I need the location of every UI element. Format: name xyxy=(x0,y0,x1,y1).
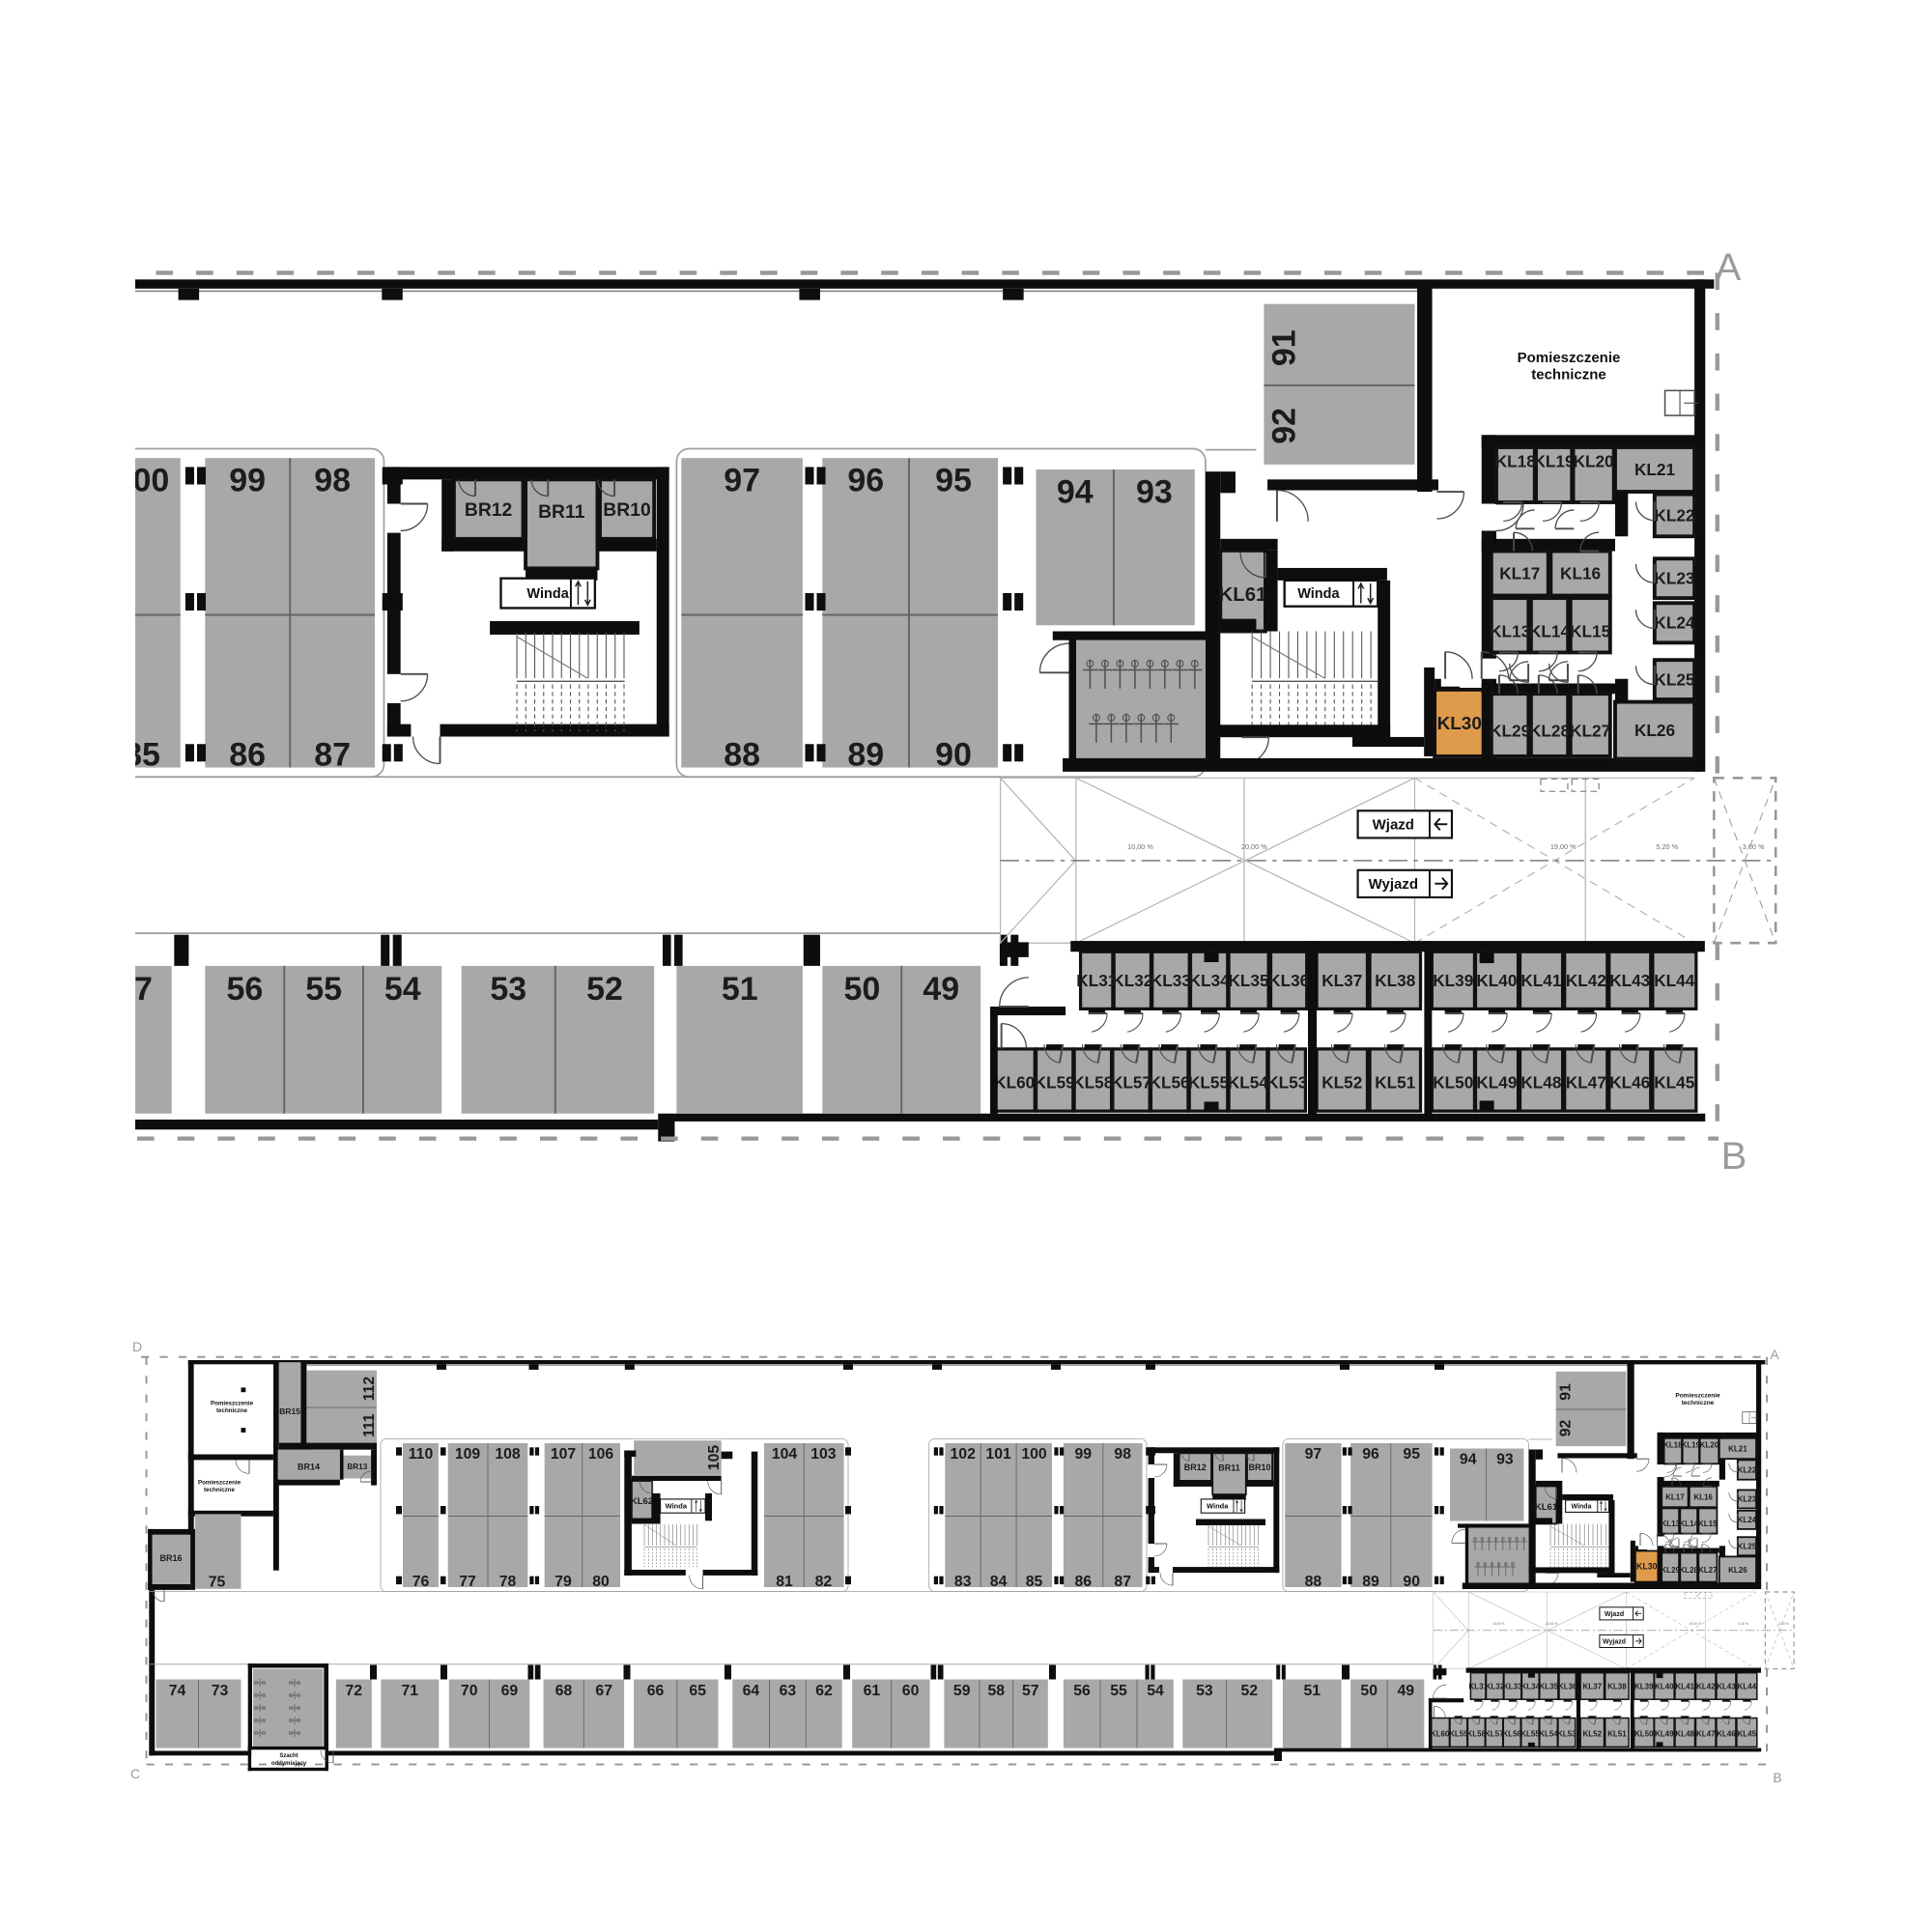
svg-text:55: 55 xyxy=(1110,1683,1127,1699)
svg-text:KL43: KL43 xyxy=(1609,971,1650,990)
svg-text:B: B xyxy=(1721,1135,1747,1178)
svg-text:KL32: KL32 xyxy=(1112,971,1152,990)
svg-text:51: 51 xyxy=(1304,1683,1321,1699)
svg-text:KL54: KL54 xyxy=(1228,1072,1268,1092)
svg-text:103: 103 xyxy=(810,1446,837,1463)
svg-text:KL26: KL26 xyxy=(1634,721,1675,740)
svg-text:KL42: KL42 xyxy=(1696,1682,1716,1690)
svg-text:KL61: KL61 xyxy=(1535,1502,1558,1513)
svg-text:Winda: Winda xyxy=(1297,586,1340,602)
svg-text:KL33: KL33 xyxy=(1151,971,1191,990)
svg-text:BR10: BR10 xyxy=(1248,1463,1270,1472)
svg-text:Winda: Winda xyxy=(1207,1502,1229,1511)
svg-text:Pomieszczenie: Pomieszczenie xyxy=(198,1480,241,1487)
svg-text:63: 63 xyxy=(780,1683,797,1699)
svg-text:KL50: KL50 xyxy=(1433,1072,1473,1092)
svg-text:KL55: KL55 xyxy=(1188,1072,1229,1092)
svg-text:100: 100 xyxy=(1021,1446,1047,1463)
svg-text:52: 52 xyxy=(1241,1683,1259,1699)
svg-text:65: 65 xyxy=(689,1683,706,1699)
svg-text:KL20: KL20 xyxy=(1574,452,1614,471)
svg-text:KL45: KL45 xyxy=(1654,1072,1694,1092)
svg-text:KL60: KL60 xyxy=(1431,1729,1450,1738)
svg-text:71: 71 xyxy=(402,1683,419,1699)
svg-text:94: 94 xyxy=(1057,473,1094,510)
svg-text:90: 90 xyxy=(935,736,972,773)
svg-text:KL44: KL44 xyxy=(1654,971,1694,990)
svg-text:BR11: BR11 xyxy=(538,501,585,523)
svg-text:KL48: KL48 xyxy=(1520,1072,1561,1092)
svg-text:KL57: KL57 xyxy=(1111,1072,1151,1092)
svg-text:KL27: KL27 xyxy=(1570,722,1610,741)
svg-text:KL13: KL13 xyxy=(1490,622,1530,641)
svg-text:KL59: KL59 xyxy=(1035,1072,1075,1092)
svg-text:KL52: KL52 xyxy=(1321,1072,1362,1092)
svg-text:KL16: KL16 xyxy=(1560,564,1601,583)
svg-text:KL55: KL55 xyxy=(1520,1729,1540,1738)
svg-text:99: 99 xyxy=(229,463,266,499)
svg-text:KL18: KL18 xyxy=(1495,452,1536,471)
svg-text:KL46: KL46 xyxy=(1609,1072,1650,1092)
svg-text:66: 66 xyxy=(647,1683,665,1699)
svg-text:KL21: KL21 xyxy=(1634,460,1675,479)
svg-text:KL26: KL26 xyxy=(1728,1566,1747,1575)
svg-text:Wjazd: Wjazd xyxy=(1605,1611,1624,1618)
svg-text:C: C xyxy=(130,1766,140,1781)
svg-text:KL39: KL39 xyxy=(1634,1682,1654,1690)
svg-text:BR15: BR15 xyxy=(279,1406,300,1416)
svg-text:74: 74 xyxy=(169,1683,186,1699)
svg-text:52: 52 xyxy=(586,971,623,1008)
svg-text:KL35: KL35 xyxy=(1540,1682,1559,1690)
svg-text:KL28: KL28 xyxy=(1529,722,1570,741)
svg-text:55: 55 xyxy=(305,971,342,1008)
svg-text:KL41: KL41 xyxy=(1520,971,1561,990)
svg-text:93: 93 xyxy=(1496,1452,1514,1468)
svg-text:KL33: KL33 xyxy=(1503,1682,1522,1690)
svg-text:81: 81 xyxy=(776,1574,793,1590)
svg-text:57: 57 xyxy=(1022,1683,1039,1699)
svg-text:KL50: KL50 xyxy=(1634,1729,1654,1738)
svg-text:79: 79 xyxy=(554,1574,572,1590)
svg-text:KL14: KL14 xyxy=(1679,1520,1698,1528)
svg-text:KL36: KL36 xyxy=(1268,971,1309,990)
svg-text:96: 96 xyxy=(1362,1446,1379,1463)
svg-text:102: 102 xyxy=(951,1446,977,1463)
svg-text:58: 58 xyxy=(988,1683,1006,1699)
svg-text:KL36: KL36 xyxy=(1558,1682,1577,1690)
svg-text:49: 49 xyxy=(923,971,959,1008)
svg-text:49: 49 xyxy=(1398,1683,1415,1699)
svg-text:20,00 %: 20,00 % xyxy=(1241,842,1267,851)
svg-text:KL62: KL62 xyxy=(631,1496,653,1507)
svg-text:KL53: KL53 xyxy=(1266,1072,1307,1092)
svg-text:KL23: KL23 xyxy=(1654,569,1694,588)
svg-text:91: 91 xyxy=(1265,329,1302,366)
svg-text:KL45: KL45 xyxy=(1738,1729,1757,1738)
svg-text:Winda: Winda xyxy=(526,586,569,602)
svg-text:KL21: KL21 xyxy=(1728,1444,1747,1453)
svg-text:70: 70 xyxy=(461,1683,478,1699)
svg-text:KL15: KL15 xyxy=(1698,1520,1718,1528)
svg-text:67: 67 xyxy=(595,1683,612,1699)
svg-text:KL40: KL40 xyxy=(1476,971,1517,990)
svg-text:KL24: KL24 xyxy=(1654,613,1694,633)
svg-text:Szacht: Szacht xyxy=(279,1753,298,1759)
svg-text:69: 69 xyxy=(501,1683,519,1699)
svg-text:50: 50 xyxy=(843,971,880,1008)
svg-text:BR12: BR12 xyxy=(1184,1463,1207,1472)
svg-text:KL35: KL35 xyxy=(1228,971,1268,990)
svg-text:KL27: KL27 xyxy=(1698,1566,1718,1575)
svg-text:111: 111 xyxy=(361,1413,378,1437)
svg-text:Pomieszczenie: Pomieszczenie xyxy=(211,1401,254,1407)
svg-text:Pomieszczenie: Pomieszczenie xyxy=(1675,1392,1720,1399)
svg-text:KL59: KL59 xyxy=(1449,1729,1468,1738)
svg-text:KL22: KL22 xyxy=(1654,506,1694,526)
svg-text:KL61: KL61 xyxy=(1219,584,1267,606)
svg-text:73: 73 xyxy=(212,1683,229,1699)
svg-text:KL56: KL56 xyxy=(1502,1729,1521,1738)
svg-text:BR12: BR12 xyxy=(465,499,512,521)
svg-text:KL51: KL51 xyxy=(1607,1729,1627,1738)
svg-text:62: 62 xyxy=(815,1683,833,1699)
svg-text:KL49: KL49 xyxy=(1476,1072,1517,1092)
svg-text:A: A xyxy=(1716,246,1742,289)
svg-text:64: 64 xyxy=(743,1683,760,1699)
svg-text:techniczne: techniczne xyxy=(1531,366,1606,383)
svg-text:KL54: KL54 xyxy=(1539,1729,1558,1738)
svg-text:68: 68 xyxy=(555,1683,573,1699)
svg-text:Wyjazd: Wyjazd xyxy=(1369,876,1418,893)
svg-text:85: 85 xyxy=(1026,1574,1043,1590)
svg-text:95: 95 xyxy=(1403,1446,1420,1463)
svg-text:98: 98 xyxy=(314,463,351,499)
svg-text:KL34: KL34 xyxy=(1521,1682,1541,1690)
svg-text:89: 89 xyxy=(1362,1574,1379,1590)
svg-text:KL25: KL25 xyxy=(1738,1543,1757,1551)
svg-text:54: 54 xyxy=(384,971,421,1008)
svg-text:KL18: KL18 xyxy=(1663,1440,1683,1449)
svg-text:KL42: KL42 xyxy=(1566,971,1606,990)
svg-text:78: 78 xyxy=(499,1574,517,1590)
svg-text:KL58: KL58 xyxy=(1467,1729,1487,1738)
svg-text:KL28: KL28 xyxy=(1679,1566,1698,1575)
svg-text:A: A xyxy=(1770,1347,1779,1362)
svg-text:KL22: KL22 xyxy=(1738,1465,1757,1474)
svg-text:112: 112 xyxy=(361,1377,378,1402)
svg-text:techniczne: techniczne xyxy=(216,1407,248,1414)
svg-text:KL41: KL41 xyxy=(1675,1682,1694,1690)
svg-text:KL13: KL13 xyxy=(1661,1520,1680,1528)
svg-text:86: 86 xyxy=(1075,1574,1093,1590)
svg-text:BR11: BR11 xyxy=(1218,1463,1240,1473)
svg-text:KL25: KL25 xyxy=(1654,670,1694,690)
svg-text:86: 86 xyxy=(229,736,266,773)
svg-text:KL38: KL38 xyxy=(1607,1682,1627,1690)
svg-text:oddymiający: oddymiający xyxy=(271,1761,307,1767)
svg-text:20,00 %: 20,00 % xyxy=(1546,1622,1557,1626)
svg-text:10,00 %: 10,00 % xyxy=(1127,842,1153,851)
svg-text:93: 93 xyxy=(1136,473,1173,510)
svg-text:KL44: KL44 xyxy=(1738,1682,1757,1690)
svg-text:BR13: BR13 xyxy=(347,1463,367,1471)
svg-text:98: 98 xyxy=(1114,1446,1131,1463)
svg-text:KL37: KL37 xyxy=(1583,1682,1603,1690)
svg-text:53: 53 xyxy=(490,971,526,1008)
svg-text:3,00 %: 3,00 % xyxy=(1743,842,1765,851)
svg-text:106: 106 xyxy=(588,1446,614,1463)
svg-text:95: 95 xyxy=(935,463,972,499)
svg-text:KL17: KL17 xyxy=(1665,1492,1685,1501)
svg-text:KL43: KL43 xyxy=(1717,1682,1736,1690)
svg-text:KL51: KL51 xyxy=(1375,1072,1415,1092)
svg-text:19,00 %: 19,00 % xyxy=(1690,1622,1701,1626)
svg-text:87: 87 xyxy=(1114,1574,1131,1590)
svg-text:KL48: KL48 xyxy=(1675,1729,1694,1738)
svg-text:88: 88 xyxy=(724,736,760,773)
svg-text:87: 87 xyxy=(314,736,351,773)
svg-text:KL17: KL17 xyxy=(1499,564,1540,583)
svg-text:Wyjazd: Wyjazd xyxy=(1603,1638,1626,1645)
svg-text:96: 96 xyxy=(847,463,884,499)
svg-text:KL16: KL16 xyxy=(1693,1492,1713,1501)
svg-text:3,00 %: 3,00 % xyxy=(1778,1622,1789,1626)
svg-text:105: 105 xyxy=(706,1445,723,1471)
svg-text:B: B xyxy=(1773,1770,1781,1785)
svg-text:77: 77 xyxy=(459,1574,476,1590)
svg-text:59: 59 xyxy=(953,1683,971,1699)
svg-text:KL53: KL53 xyxy=(1557,1729,1577,1738)
svg-text:19,00 %: 19,00 % xyxy=(1550,842,1577,851)
svg-text:97: 97 xyxy=(1305,1446,1322,1463)
svg-text:KL38: KL38 xyxy=(1375,971,1415,990)
svg-text:5,20 %: 5,20 % xyxy=(1739,1622,1749,1626)
svg-text:KL60: KL60 xyxy=(994,1072,1035,1092)
svg-text:94: 94 xyxy=(1460,1452,1477,1468)
svg-text:56: 56 xyxy=(227,971,264,1008)
svg-text:108: 108 xyxy=(495,1446,521,1463)
svg-text:5,20 %: 5,20 % xyxy=(1656,842,1678,851)
svg-text:KL34: KL34 xyxy=(1189,971,1230,990)
svg-text:92: 92 xyxy=(1558,1420,1575,1437)
svg-text:KL47: KL47 xyxy=(1696,1729,1716,1738)
svg-text:BR14: BR14 xyxy=(298,1462,320,1471)
svg-text:KL30: KL30 xyxy=(1437,714,1482,734)
svg-text:KL29: KL29 xyxy=(1661,1566,1680,1575)
svg-text:KL14: KL14 xyxy=(1529,622,1570,641)
svg-text:50: 50 xyxy=(1360,1683,1378,1699)
svg-text:techniczne: techniczne xyxy=(1682,1400,1715,1406)
svg-text:82: 82 xyxy=(815,1574,833,1590)
svg-text:99: 99 xyxy=(1075,1446,1093,1463)
svg-text:83: 83 xyxy=(954,1574,972,1590)
svg-text:56: 56 xyxy=(1073,1683,1091,1699)
svg-text:Winda: Winda xyxy=(666,1502,688,1511)
svg-text:84: 84 xyxy=(990,1574,1008,1590)
svg-text:KL19: KL19 xyxy=(1682,1440,1701,1449)
svg-text:KL40: KL40 xyxy=(1655,1682,1674,1690)
svg-text:KL19: KL19 xyxy=(1534,452,1575,471)
svg-text:Wjazd: Wjazd xyxy=(1373,816,1414,833)
svg-text:107: 107 xyxy=(551,1446,577,1463)
svg-text:Winda: Winda xyxy=(1572,1503,1592,1510)
svg-text:75: 75 xyxy=(209,1575,226,1591)
svg-text:BR16: BR16 xyxy=(159,1553,182,1563)
svg-text:BR10: BR10 xyxy=(603,499,650,521)
svg-text:KL24: KL24 xyxy=(1738,1516,1757,1524)
svg-text:KL30: KL30 xyxy=(1636,1562,1658,1572)
svg-text:90: 90 xyxy=(1403,1574,1420,1590)
svg-text:KL47: KL47 xyxy=(1566,1072,1606,1092)
svg-text:53: 53 xyxy=(1196,1683,1213,1699)
svg-text:KL39: KL39 xyxy=(1433,971,1473,990)
svg-text:KL56: KL56 xyxy=(1150,1072,1190,1092)
svg-text:60: 60 xyxy=(902,1683,920,1699)
svg-text:92: 92 xyxy=(1265,408,1302,444)
svg-text:104: 104 xyxy=(772,1446,798,1463)
svg-text:KL49: KL49 xyxy=(1655,1729,1674,1738)
svg-text:51: 51 xyxy=(722,971,758,1008)
svg-text:80: 80 xyxy=(592,1574,610,1590)
svg-text:KL32: KL32 xyxy=(1486,1682,1505,1690)
svg-text:KL57: KL57 xyxy=(1485,1729,1504,1738)
svg-text:54: 54 xyxy=(1147,1683,1164,1699)
svg-text:88: 88 xyxy=(1305,1574,1322,1590)
svg-text:10,00 %: 10,00 % xyxy=(1492,1622,1504,1626)
svg-text:110: 110 xyxy=(409,1446,434,1463)
svg-text:KL29: KL29 xyxy=(1490,722,1530,741)
svg-text:KL20: KL20 xyxy=(1700,1440,1719,1449)
svg-text:KL15: KL15 xyxy=(1570,622,1610,641)
svg-text:KL23: KL23 xyxy=(1738,1495,1757,1504)
svg-text:D: D xyxy=(132,1339,142,1354)
svg-text:91: 91 xyxy=(1558,1383,1575,1401)
svg-text:techniczne: techniczne xyxy=(204,1487,236,1493)
svg-text:KL52: KL52 xyxy=(1583,1729,1603,1738)
svg-text:72: 72 xyxy=(346,1683,363,1699)
svg-text:76: 76 xyxy=(412,1574,430,1590)
svg-text:61: 61 xyxy=(864,1683,881,1699)
svg-text:101: 101 xyxy=(985,1446,1011,1463)
svg-text:KL46: KL46 xyxy=(1717,1729,1736,1738)
svg-text:109: 109 xyxy=(455,1446,481,1463)
svg-text:97: 97 xyxy=(724,463,760,499)
svg-text:KL37: KL37 xyxy=(1321,971,1362,990)
svg-text:KL58: KL58 xyxy=(1072,1072,1113,1092)
svg-text:89: 89 xyxy=(847,736,884,773)
svg-text:Pomieszczenie: Pomieszczenie xyxy=(1518,350,1621,366)
